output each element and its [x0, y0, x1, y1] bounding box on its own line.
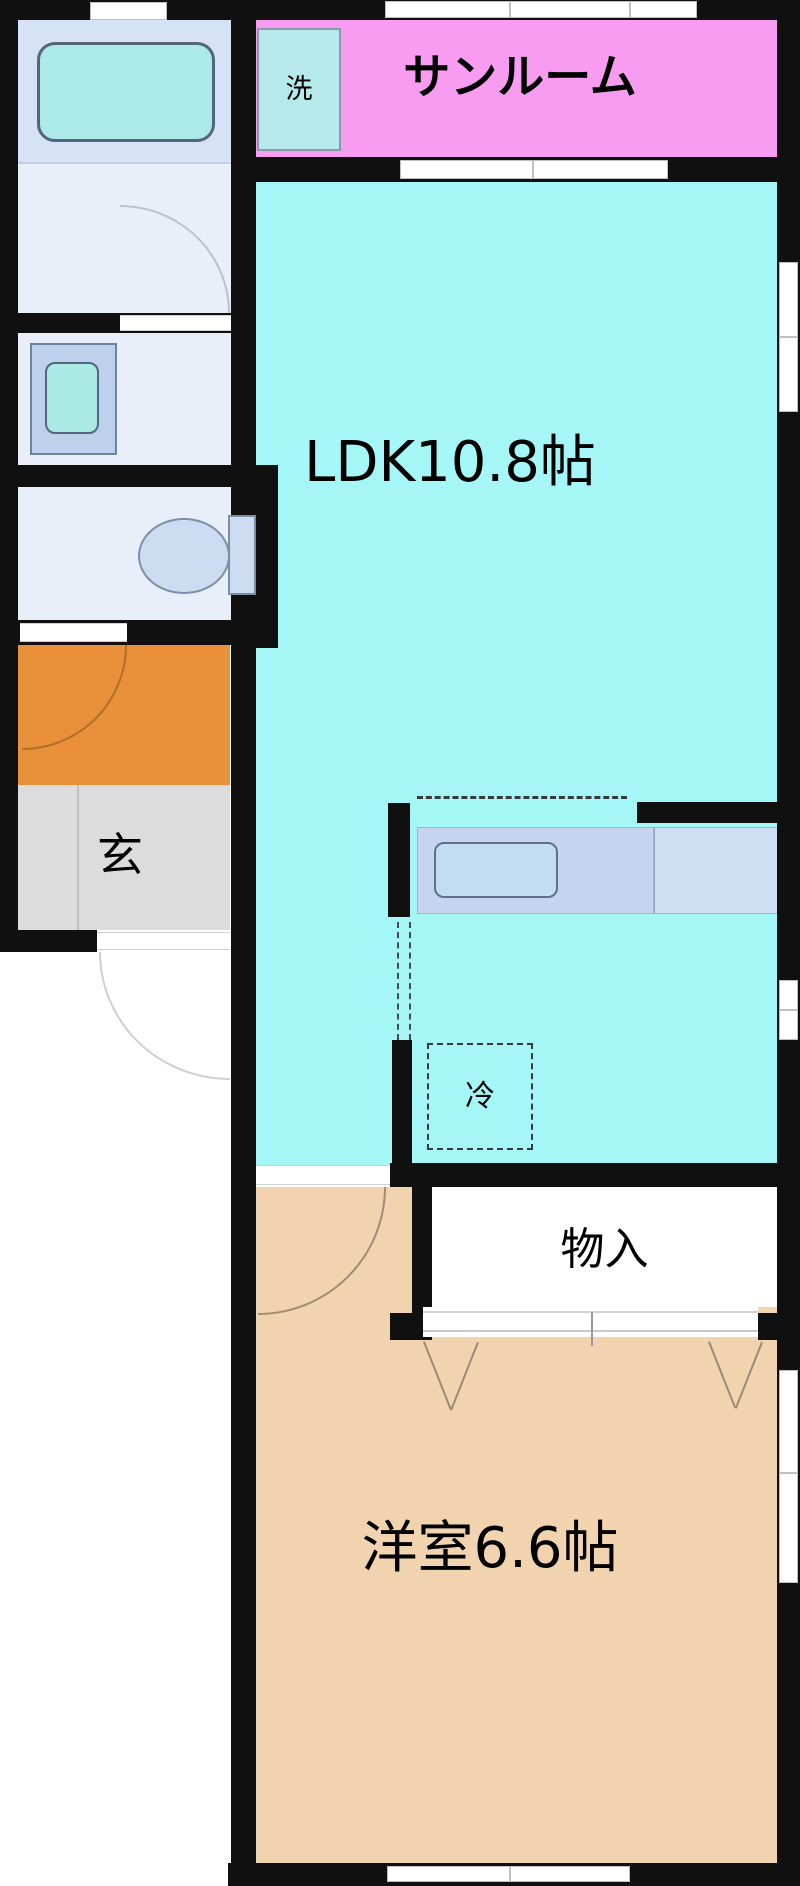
window-divider — [780, 1009, 797, 1011]
door-gap-bathroom — [120, 315, 231, 331]
window-bathroom-top — [90, 2, 167, 20]
kitchen-counter-right — [654, 827, 777, 914]
toilet-bowl — [138, 518, 230, 594]
room-ldk — [256, 178, 777, 1165]
window-right-western — [779, 1370, 798, 1583]
storage-door-tick — [591, 1312, 593, 1346]
genkan-label: 玄 — [90, 830, 150, 881]
refrigerator-box: 冷 — [427, 1043, 533, 1150]
wall-counter-stub — [388, 803, 410, 917]
wall-left — [0, 0, 18, 952]
wall-entrance — [0, 930, 97, 952]
window-divider — [509, 1867, 511, 1881]
wall-storage-corner-right — [758, 1313, 777, 1340]
door-gap-entrance — [97, 932, 230, 950]
washer-box: 洗 — [257, 28, 341, 151]
door-gap-toilet — [20, 623, 127, 642]
wall-main-vertical — [231, 20, 256, 1886]
sunroom-label: サンルーム — [345, 52, 695, 104]
toilet-tank — [228, 515, 256, 595]
window-sunroom-ldk — [400, 160, 668, 179]
wall-ldk-bottom — [390, 1163, 777, 1187]
door-gap-ldk-western — [256, 1165, 390, 1185]
window-divider — [509, 2, 511, 17]
window-divider — [780, 1472, 797, 1474]
window-sunroom-top — [385, 1, 697, 18]
wall-kitchen-lower-stub — [392, 1040, 412, 1165]
window-divider — [780, 336, 797, 338]
western-room-label: 洋室6.6帖 — [290, 1518, 690, 1580]
kitchen-partition-dashed — [397, 922, 411, 1040]
window-divider — [629, 2, 631, 17]
storage-label: 物入 — [432, 1226, 777, 1274]
washbasin-bowl — [45, 362, 99, 434]
ldk-label: LDK10.8帖 — [250, 432, 650, 494]
kitchen-sink — [434, 842, 558, 898]
wall-storage-corner-left — [390, 1313, 423, 1340]
genkan-step-line — [77, 785, 79, 930]
wall-kitchen-upper — [637, 802, 777, 823]
door-arc-entrance — [99, 952, 230, 1080]
kitchen-cabinet-dashed-line — [417, 796, 627, 799]
floor-plan: 洗 冷 LDK10.8帖 洋室6.6帖 サンルーム 玄 物入 — [0, 0, 800, 1886]
refrigerator-label: 冷 — [465, 1080, 495, 1113]
washer-label: 洗 — [286, 75, 313, 105]
bathtub — [37, 42, 215, 142]
window-divider — [532, 161, 534, 178]
wall-washroom-toilet — [18, 465, 278, 487]
